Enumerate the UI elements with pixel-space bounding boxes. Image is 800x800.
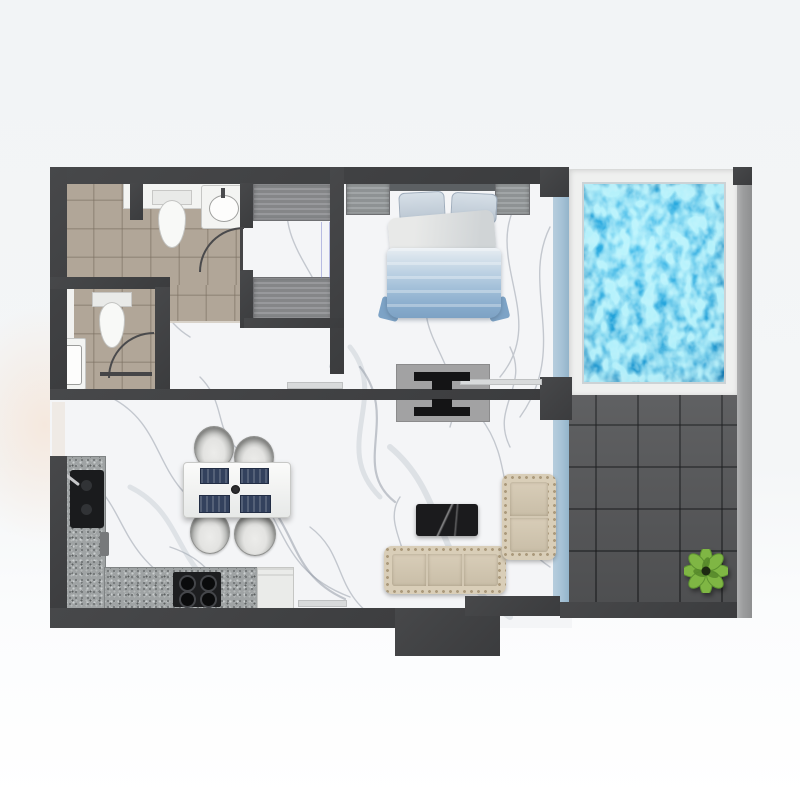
wall-vanity-stub	[130, 183, 143, 220]
basin-faucet	[221, 188, 225, 198]
wall-bottom-living	[465, 596, 560, 616]
loveseat-cushions	[510, 482, 548, 552]
counter-item	[100, 532, 109, 556]
washbasin-main	[201, 185, 245, 229]
white-appliance	[257, 567, 294, 609]
loveseat-cushion	[510, 482, 548, 516]
sofa-three-seat	[384, 546, 506, 594]
pocket-door-lines	[321, 222, 330, 278]
toilet-small-bowl	[99, 302, 125, 348]
wall-left-lower	[50, 456, 67, 628]
wall-closet-bottom	[244, 318, 344, 328]
kitchen-sink	[70, 470, 104, 528]
wall-mid-horizontal	[50, 389, 556, 400]
sink-basin	[81, 504, 92, 515]
nightstand-left	[346, 181, 390, 215]
sliding-door-leaf-hall	[287, 382, 343, 389]
sofa-cushion	[392, 554, 426, 586]
wall-smallbath-top	[50, 277, 170, 289]
tv-living-screen	[414, 407, 470, 416]
kitchen-floor-sill	[298, 600, 347, 607]
bedroom-window-sill	[460, 379, 542, 385]
wall-top	[50, 167, 569, 184]
sofa-seat-cushions	[392, 554, 498, 586]
wall-glass-mid-block	[540, 377, 572, 420]
burner	[200, 591, 217, 608]
burner	[179, 591, 196, 608]
table-centerpiece	[231, 485, 240, 494]
coffee-table	[416, 504, 478, 536]
pool-water	[582, 182, 726, 384]
sofa-cushion	[464, 554, 498, 586]
cooktop	[173, 572, 221, 607]
toilet-small	[90, 292, 132, 348]
toilet-bowl	[158, 200, 186, 248]
sink-basin	[81, 480, 92, 491]
dining-table	[183, 462, 291, 518]
loveseat-two-seat	[502, 474, 556, 560]
wardrobe-bottom	[253, 277, 332, 320]
toilet-main	[152, 190, 190, 254]
wall-smallbath-right	[155, 287, 170, 389]
door-leaf-bathroom-main	[240, 227, 243, 271]
burner	[179, 575, 196, 592]
tv-bedroom-screen	[414, 372, 470, 381]
tv-bedroom-stand	[432, 381, 452, 390]
placemat	[240, 495, 271, 513]
sofa-cushion	[428, 554, 462, 586]
placemat	[199, 495, 230, 513]
wall-bath-right-upper	[240, 183, 253, 228]
wall-top-right-corner	[733, 167, 752, 185]
wall-closet-right	[330, 167, 344, 374]
glass-wall-upper	[553, 195, 569, 377]
dining-chair-bottom-right	[234, 512, 276, 556]
wall-terrace-bottom	[560, 602, 737, 618]
wardrobe-top	[253, 183, 332, 221]
bed-duvet	[387, 248, 501, 318]
entry-threshold	[52, 402, 65, 456]
door-leaf-bathroom-small	[100, 372, 152, 376]
floor-plan-canvas	[0, 0, 800, 800]
placemat	[240, 468, 269, 484]
burner	[200, 575, 217, 592]
outer-right-wall	[737, 169, 752, 618]
basin-bowl	[209, 195, 239, 222]
loveseat-cushion	[510, 518, 548, 552]
placemat	[200, 468, 229, 484]
wall-top-glass-block	[540, 167, 569, 197]
double-bed	[385, 190, 503, 320]
potted-plant	[684, 549, 728, 593]
